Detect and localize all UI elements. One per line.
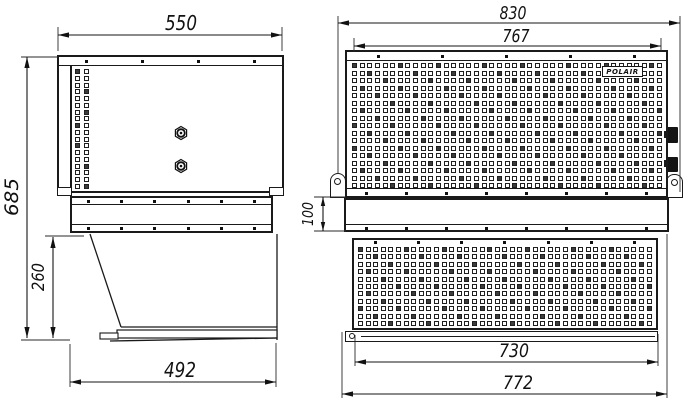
dim-label-685: 685: [1, 178, 23, 216]
technical-drawing-canvas: POLAIR: [0, 0, 690, 402]
cable-gland-lower: [667, 157, 678, 172]
lifting-eyelet-right: [666, 174, 683, 198]
side-view-foot-left: [57, 187, 72, 196]
lifting-eyelet-left-hole: [334, 178, 341, 185]
side-view-top-strip: [59, 57, 282, 66]
front-view-rail-screw: [349, 333, 355, 339]
dim-label-550: 550: [165, 11, 197, 35]
side-view-duct-outline: [90, 234, 277, 341]
front-view-top-strip: [347, 52, 666, 61]
dim-label-767: 767: [503, 26, 530, 47]
dim-label-730: 730: [499, 340, 529, 362]
dim-label-260: 260: [29, 263, 49, 291]
front-view-grille-bottom-screws: [347, 188, 666, 197]
dim-label-830: 830: [500, 3, 527, 24]
front-view-evaporator-grille: [358, 247, 652, 326]
front-view-bottom-rail-seam: [361, 336, 655, 337]
front-view-band-bottom-screws: [346, 224, 667, 231]
lifting-eyelet-left: [330, 173, 346, 198]
dim-label-772: 772: [503, 372, 533, 394]
cable-gland-upper: [667, 127, 678, 143]
side-view-band-bottom-screws: [72, 224, 271, 231]
lifting-eyelet-right-hole: [671, 179, 678, 186]
front-view-lower-top-screws: [354, 239, 656, 245]
front-view-condenser-grille: [352, 63, 662, 188]
side-view-band-top-screws: [72, 198, 271, 205]
dim-label-100: 100: [299, 202, 317, 226]
side-view-panel-seam: [70, 66, 72, 191]
brand-logo-text: POLAIR: [606, 68, 639, 76]
side-view-foot-right: [269, 187, 284, 196]
side-view-vent-perforation: [75, 69, 89, 189]
brand-logo: POLAIR: [602, 66, 643, 77]
dim-label-492: 492: [164, 358, 196, 382]
side-view-housing: [57, 55, 284, 193]
